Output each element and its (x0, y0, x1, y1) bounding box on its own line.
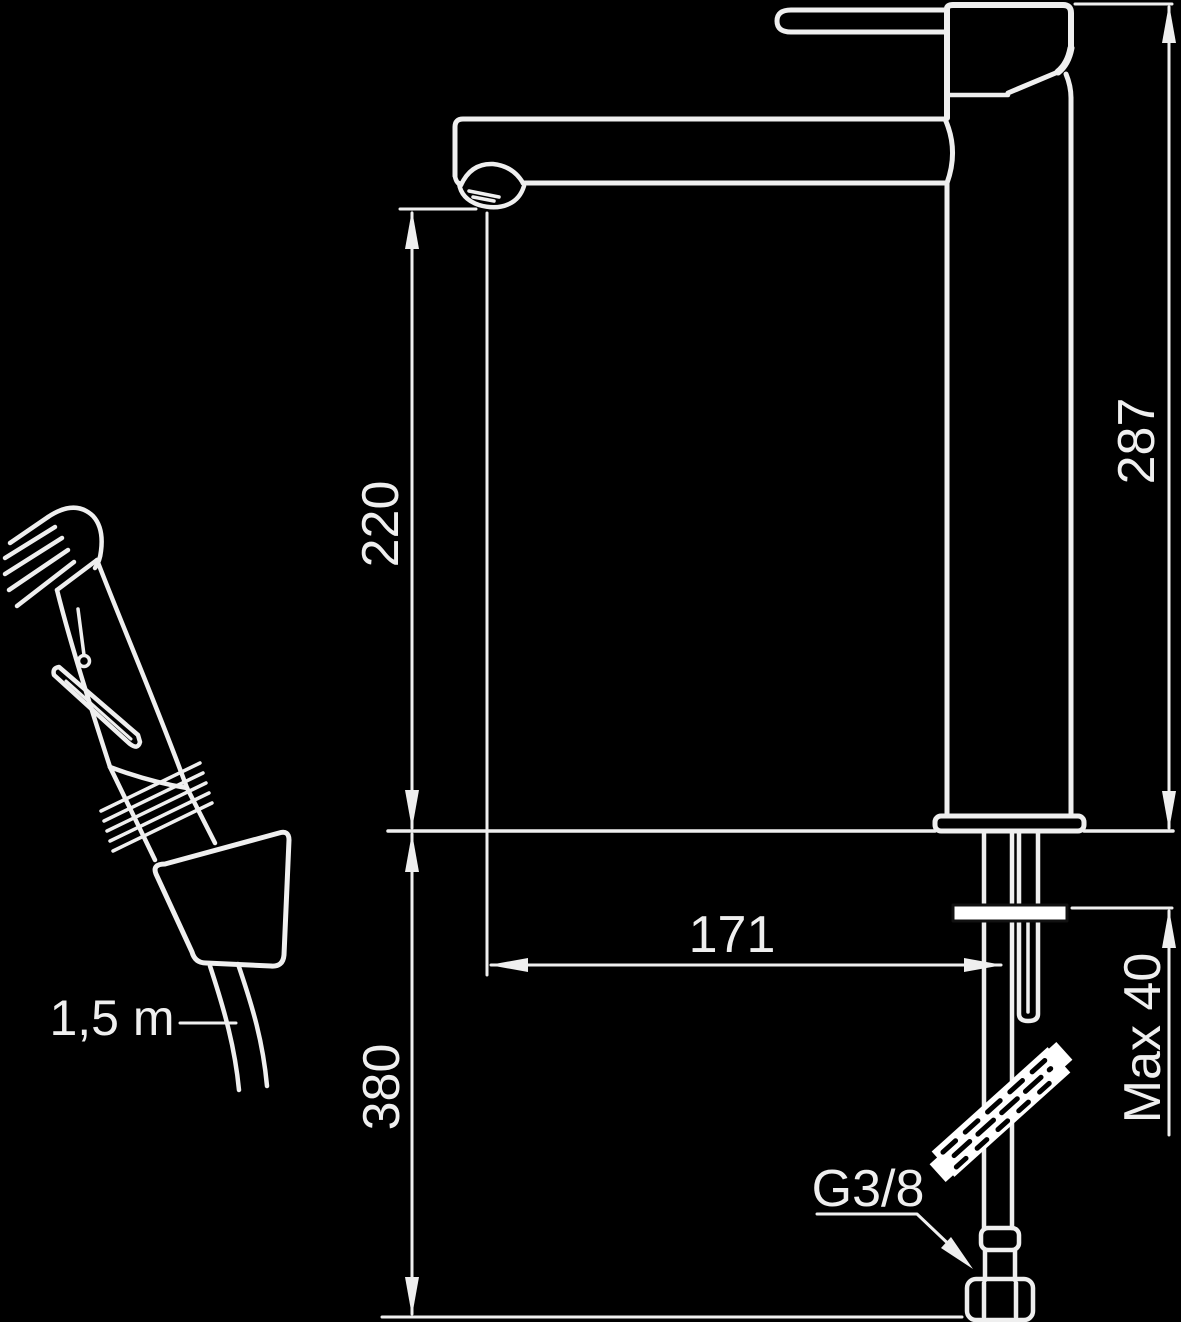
dim-label-287: 287 (1108, 398, 1166, 485)
g38-connection-nut-icon (967, 1228, 1033, 1320)
aerator-icon (455, 164, 524, 207)
dim-label-max-40: Max 40 (1114, 953, 1172, 1124)
spray-hose-icon (210, 964, 267, 1090)
dimension-arrowheads (405, 4, 1176, 1316)
faucet-dimension-diagram: 220 287 171 380 Max 40 G3/8 1,5 m (0, 0, 1181, 1322)
mixer-body-icon (947, 5, 1071, 118)
technical-drawing-canvas: 220 287 171 380 Max 40 G3/8 1,5 m (0, 0, 1181, 1322)
dim-label-g38: G3/8 (812, 1160, 925, 1218)
spout-icon (455, 119, 953, 183)
hose-break-symbol-icon (924, 1040, 1078, 1183)
dim-label-hose-length: 1,5 m (49, 990, 174, 1046)
base-plate-icon (935, 816, 1084, 831)
lever-handle-icon (777, 10, 947, 32)
hand-spray-icon (5, 508, 215, 860)
dimension-lines (180, 4, 1172, 1317)
spray-holder-cone-icon (155, 832, 289, 966)
mounting-washer-icon (953, 905, 1067, 921)
dim-label-220: 220 (352, 481, 410, 568)
mounting-shank-icon (984, 832, 1038, 1228)
riser-column-icon (947, 62, 1071, 816)
dim-label-380: 380 (353, 1044, 411, 1131)
dim-label-171: 171 (689, 906, 776, 964)
